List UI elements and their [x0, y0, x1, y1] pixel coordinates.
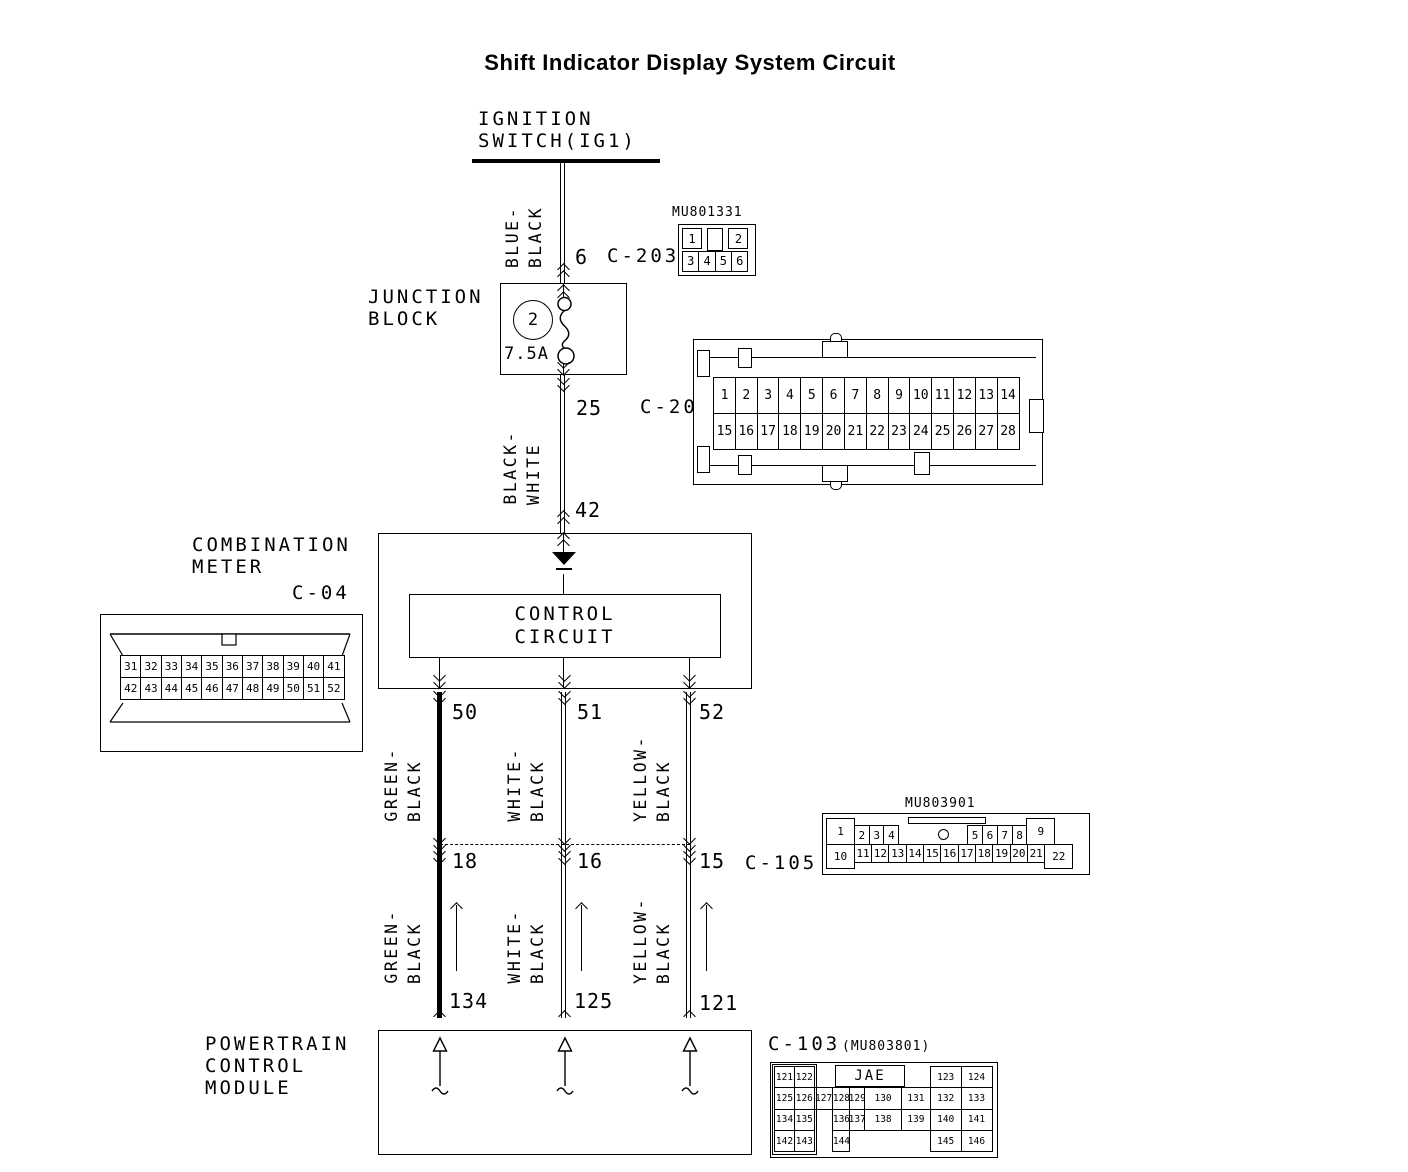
- pin-cell: 141: [961, 1109, 993, 1132]
- pin-cell: 7: [997, 825, 1013, 845]
- wire-label-blue-black: BLUE- BLACK: [504, 206, 545, 268]
- wire-color-word: GREEN-: [383, 909, 401, 984]
- pin-cell: 140: [930, 1109, 962, 1132]
- meter-line1: COMBINATION: [192, 534, 351, 556]
- pin-cell: 5: [800, 377, 823, 414]
- wire-color-word: BLACK: [655, 922, 673, 984]
- pin-cell: 6: [982, 825, 998, 845]
- pin-gap: [898, 825, 968, 845]
- pin-cell: 15: [713, 413, 736, 450]
- connector-part-label-mu803901: MU803901: [905, 796, 976, 811]
- connector-c203-pin-grid: 123456: [682, 228, 748, 272]
- pin-number-50: 50: [452, 700, 478, 724]
- flow-chevron: [683, 847, 697, 864]
- wire-label-black-white: BLACK- WHITE: [502, 430, 543, 505]
- pin-cell: 23: [888, 413, 911, 450]
- connector-c103-maker: JAE: [835, 1065, 905, 1087]
- pin-cell: 24: [909, 413, 932, 450]
- connector-view-c203: 123456: [678, 224, 756, 276]
- connector-c205-tab: [830, 333, 842, 342]
- pin-cell: 9: [1026, 818, 1055, 845]
- wire-color-word: BLUE-: [504, 206, 522, 268]
- connector-c105-hole: [938, 829, 949, 840]
- wire-color-word: BLACK: [529, 760, 547, 822]
- ignition-switch-label: IGNITIONSWITCH(IG1): [478, 108, 637, 152]
- pin-cell: 35: [201, 655, 223, 678]
- pcm-input-arrow-icon: [428, 1036, 452, 1100]
- pin-cell: 123: [930, 1066, 962, 1089]
- junction-block-label: JUNCTIONBLOCK: [368, 286, 484, 330]
- connector-ref-c04: C-04: [292, 582, 350, 604]
- control-circuit-box: CONTROLCIRCUIT: [409, 594, 721, 658]
- wire-segment: [563, 533, 564, 552]
- pin-cell: 10: [826, 844, 855, 869]
- pcm-line2: CONTROL: [205, 1055, 306, 1077]
- pin-cell: 46: [201, 677, 223, 700]
- pin-cell: 31: [120, 655, 142, 678]
- pin-cell: 33: [161, 655, 183, 678]
- wire-label-white-black-lower: WHITE- BLACK: [506, 909, 547, 984]
- pin-cell: 41: [323, 655, 345, 678]
- flow-chevron: [433, 847, 447, 864]
- pin-cell: 47: [222, 677, 244, 700]
- pin-cell: 27: [975, 413, 998, 450]
- connector-c205-tab: [822, 465, 848, 482]
- wiring-diagram: Shift Indicator Display System Circuit I…: [0, 0, 1408, 1172]
- pin-cell: 1: [826, 818, 855, 845]
- flow-chevron: [558, 847, 572, 864]
- pin-cell: 28: [997, 413, 1020, 450]
- connector-c105-pin-grid: 12345678910111213141516171819202122: [826, 818, 1086, 869]
- pin-cell: 19: [992, 844, 1011, 863]
- page-title: Shift Indicator Display System Circuit: [340, 50, 1040, 76]
- pin-cell: 45: [181, 677, 203, 700]
- meter-line2: METER: [192, 556, 264, 578]
- pin-cell: 18: [975, 844, 994, 863]
- pin-cell: 20: [1010, 844, 1029, 863]
- wire-label-white-black-upper: WHITE- BLACK: [506, 747, 547, 822]
- pin-cell: 22: [866, 413, 889, 450]
- pin-cell: 52: [323, 677, 345, 700]
- wire-label-yellow-black-upper: YELLOW- BLACK: [632, 735, 673, 822]
- pin-row: 10111213141516171819202122: [826, 844, 1086, 869]
- pin-cell: 2: [854, 825, 870, 845]
- pin-cell: 129: [849, 1087, 865, 1110]
- pin-cell: 132: [930, 1087, 962, 1110]
- pin-cell: 137: [849, 1109, 865, 1132]
- wire-color-word: WHITE: [525, 443, 543, 505]
- pin-cell: 37: [242, 655, 264, 678]
- pin-cell: 15: [923, 844, 942, 863]
- pin-cell: 32: [140, 655, 162, 678]
- pin-number-16: 16: [577, 849, 603, 873]
- pin-cell: 21: [1027, 844, 1046, 863]
- pin-cell: 124: [961, 1066, 993, 1089]
- pin-number-meter: 42: [575, 498, 601, 522]
- wire-color-word: BLACK: [406, 760, 424, 822]
- wire-color-word: BLACK: [529, 922, 547, 984]
- pin-cell: 145: [930, 1130, 962, 1153]
- pin-cell: 7: [844, 377, 867, 414]
- pin-cell: 14: [997, 377, 1020, 414]
- wire-color-word: BLACK: [655, 760, 673, 822]
- wire-label-yellow-black-lower: YELLOW- BLACK: [632, 897, 673, 984]
- pin-cell: 5: [967, 825, 983, 845]
- pin-gap: [901, 1130, 931, 1153]
- pin-cell: 3: [682, 251, 700, 272]
- fuse-number-circle: 2: [513, 300, 553, 340]
- pin-cell: 44: [161, 677, 183, 700]
- combination-meter-label: COMBINATIONMETER: [192, 534, 351, 578]
- pin-cell: 12: [871, 844, 890, 863]
- pin-cell: 21: [844, 413, 867, 450]
- pin-number-c203: 6: [575, 245, 588, 269]
- ignition-bus-bar: [472, 159, 660, 163]
- pin-cell: 50: [283, 677, 305, 700]
- pin-row: 12: [682, 228, 748, 251]
- connector-c04-pin-grid: 3132333435363738394041424344454647484950…: [120, 655, 345, 700]
- pin-cell: 139: [901, 1109, 931, 1132]
- pin-cell: 12: [953, 377, 976, 414]
- wire-label-green-black-upper: GREEN- BLACK: [383, 747, 424, 822]
- pin-row: 3456: [682, 251, 748, 272]
- connector-ref-c105: C-105: [745, 852, 817, 874]
- pin-cell: 11: [931, 377, 954, 414]
- connector-part-label-mu801331: MU801331: [672, 205, 743, 220]
- pin-row: 4243444546474849505152: [120, 677, 345, 700]
- pin-cell: 3: [757, 377, 780, 414]
- pcm-input-arrow-icon: [553, 1036, 577, 1100]
- pin-cell: 133: [961, 1087, 993, 1110]
- pin-cell: 48: [242, 677, 264, 700]
- pin-cell: 8: [866, 377, 889, 414]
- pin-cell: 22: [1044, 844, 1073, 869]
- pin-number-c205: 25: [576, 396, 602, 420]
- wire-color-word: YELLOW-: [632, 897, 650, 984]
- pin-cell: 10: [909, 377, 932, 414]
- flow-arrow: [581, 905, 582, 971]
- wire-label-green-black-lower: GREEN- BLACK: [383, 909, 424, 984]
- pin-cell: 13: [975, 377, 998, 414]
- flow-chevron: [558, 1012, 572, 1029]
- pin-cell: 18: [778, 413, 801, 450]
- pin-cell: 38: [262, 655, 284, 678]
- pin-cell: 5: [715, 251, 733, 272]
- pin-number-51: 51: [577, 700, 603, 724]
- control-circuit-label: CONTROLCIRCUIT: [514, 603, 615, 649]
- pin-row: 3132333435363738394041: [120, 655, 345, 678]
- connector-c205-tab: [914, 452, 930, 475]
- flow-arrow: [456, 905, 457, 971]
- wire-color-word: BLACK: [527, 206, 545, 268]
- flow-chevron: [557, 265, 571, 282]
- pin-cell: 130: [864, 1087, 902, 1110]
- pin-cell: 2: [735, 377, 758, 414]
- pin-cell: 26: [953, 413, 976, 450]
- wire-color-word: BLACK: [406, 922, 424, 984]
- ignition-line1: IGNITION: [478, 108, 594, 130]
- pin-cell: 36: [222, 655, 244, 678]
- pin-cell: 1: [682, 228, 702, 249]
- pin-cell: 11: [854, 844, 873, 863]
- connector-ref-c103: C-103: [768, 1033, 840, 1055]
- flow-chevron: [683, 1012, 697, 1029]
- pin-cell: 138: [864, 1109, 902, 1132]
- pin-cell: 4: [698, 251, 716, 272]
- pin-cell: 20: [822, 413, 845, 450]
- control-line1: CONTROL: [514, 603, 615, 625]
- connector-c205-tab: [697, 350, 710, 377]
- wire-color-word: BLACK-: [502, 430, 520, 505]
- connector-c205-pin-grid: 1234567891011121314151617181920212223242…: [713, 377, 1020, 450]
- connector-ref-c203: C-203: [607, 245, 679, 267]
- pin-cell: 13: [888, 844, 907, 863]
- pin-cell: 17: [958, 844, 977, 863]
- pin-cell: 19: [800, 413, 823, 450]
- wire-color-word: YELLOW-: [632, 735, 650, 822]
- pin-cell: 4: [883, 825, 899, 845]
- pin-number-15: 15: [699, 849, 725, 873]
- pin-cell: 2: [728, 228, 748, 249]
- control-line2: CIRCUIT: [514, 626, 615, 648]
- pin-cell: 39: [283, 655, 305, 678]
- pin-number-121: 121: [699, 991, 738, 1015]
- pin-gap: [849, 1130, 865, 1153]
- junction-line1: JUNCTION: [368, 286, 484, 308]
- diode-icon: [548, 551, 580, 575]
- pin-number-134: 134: [449, 989, 488, 1013]
- pin-number-52: 52: [699, 700, 725, 724]
- pin-cell: [707, 228, 723, 251]
- pin-cell: 16: [735, 413, 758, 450]
- pin-gap: [864, 1130, 902, 1153]
- junction-line2: BLOCK: [368, 308, 440, 330]
- connector-part-label-c103: (MU803801): [842, 1039, 930, 1054]
- pcm-line1: POWERTRAIN: [205, 1033, 349, 1055]
- pin-cell: 51: [303, 677, 325, 700]
- pin-number-18: 18: [452, 849, 478, 873]
- pin-cell: 14: [906, 844, 925, 863]
- pin-cell: 25: [931, 413, 954, 450]
- pin-number-125: 125: [574, 989, 613, 1013]
- pin-cell: 8: [1012, 825, 1028, 845]
- pin-cell: 146: [961, 1130, 993, 1153]
- connector-c205-tab: [1029, 399, 1044, 433]
- pin-cell: 4: [778, 377, 801, 414]
- connector-c105-keyway: [908, 817, 986, 824]
- flow-arrow: [706, 905, 707, 971]
- connector-c205-tab: [738, 455, 752, 475]
- pin-cell: 1: [713, 377, 736, 414]
- pin-cell: 43: [140, 677, 162, 700]
- pin-cell: 9: [888, 377, 911, 414]
- pin-cell: 6: [822, 377, 845, 414]
- fuse-rating-label: 7.5A: [504, 343, 549, 365]
- pin-cell: 17: [757, 413, 780, 450]
- pin-cell: 49: [262, 677, 284, 700]
- wire-segment: [563, 574, 564, 594]
- pin-cell: 42: [120, 677, 142, 700]
- pin-cell: 34: [181, 655, 203, 678]
- connector-c205-tab: [738, 348, 752, 368]
- connector-c103-frame: [772, 1064, 817, 1155]
- pcm-label: POWERTRAINCONTROLMODULE: [205, 1033, 349, 1099]
- wire-color-word: WHITE-: [506, 909, 524, 984]
- pin-cell: 40: [303, 655, 325, 678]
- pin-gap: [901, 1066, 931, 1089]
- flow-chevron: [557, 534, 571, 551]
- pin-cell: 3: [869, 825, 885, 845]
- connector-c205-tab: [697, 446, 710, 473]
- pcm-input-arrow-icon: [678, 1036, 702, 1100]
- pin-row: 1234567891011121314: [713, 377, 1020, 414]
- wire-color-word: WHITE-: [506, 747, 524, 822]
- ignition-line2: SWITCH(IG1): [478, 130, 637, 152]
- pin-row: 1516171819202122232425262728: [713, 413, 1020, 450]
- pin-cell: 16: [940, 844, 959, 863]
- pcm-line3: MODULE: [205, 1077, 292, 1099]
- flow-chevron: [557, 512, 571, 529]
- connector-c205-tab: [830, 481, 842, 490]
- pin-cell: 131: [901, 1087, 931, 1110]
- pin-cell: 6: [731, 251, 749, 272]
- wire-color-word: GREEN-: [383, 747, 401, 822]
- flow-chevron: [433, 1012, 447, 1029]
- pin-cell: 144: [832, 1130, 850, 1153]
- connector-c205-tab: [822, 341, 848, 358]
